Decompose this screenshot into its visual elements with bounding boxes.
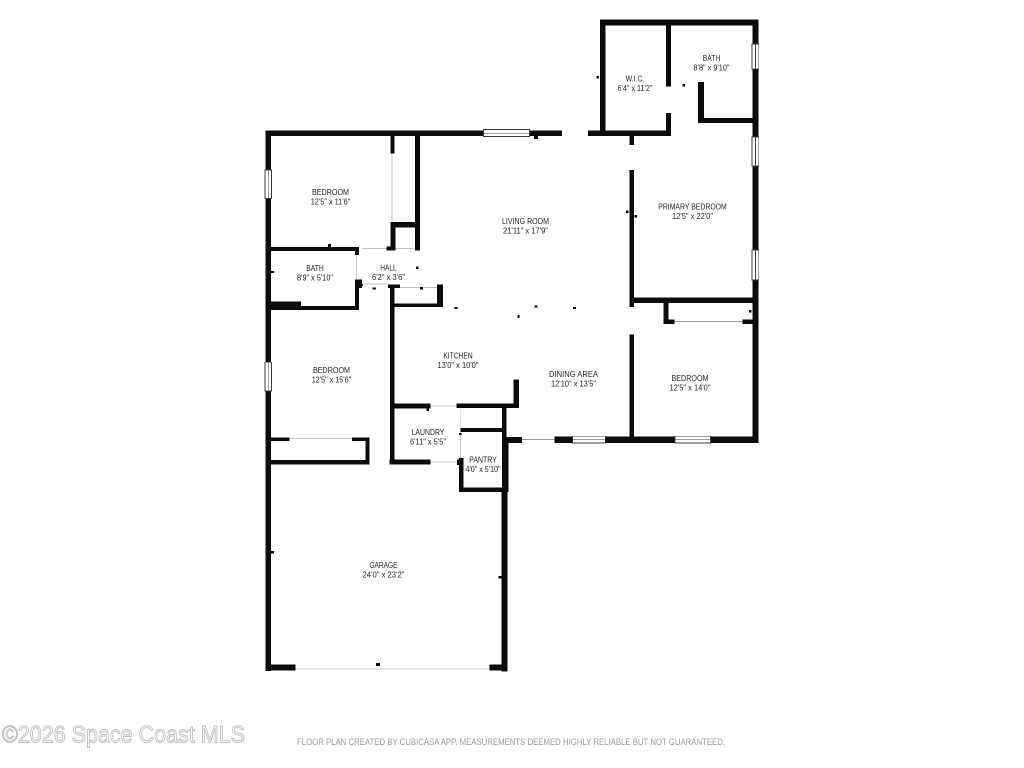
- svg-text:LAUNDRY: LAUNDRY: [412, 428, 446, 437]
- svg-text:HALL: HALL: [380, 264, 397, 273]
- svg-text:PANTRY: PANTRY: [469, 456, 497, 465]
- svg-text:PRIMARY BEDROOM: PRIMARY BEDROOM: [658, 203, 727, 212]
- svg-text:FLOOR PLAN CREATED BY CUBICASA: FLOOR PLAN CREATED BY CUBICASA APP. MEAS…: [297, 737, 725, 747]
- svg-text:KITCHEN: KITCHEN: [443, 352, 472, 361]
- svg-text:BATH: BATH: [703, 54, 721, 63]
- svg-text:BEDROOM: BEDROOM: [313, 366, 350, 375]
- svg-text:24'0" x 23'2": 24'0" x 23'2": [363, 570, 405, 579]
- svg-text:4'0" x 5'10": 4'0" x 5'10": [466, 465, 501, 474]
- svg-text:13'0" x 10'0": 13'0" x 10'0": [438, 361, 479, 370]
- svg-text:©2026 Space Coast MLS: ©2026 Space Coast MLS: [2, 722, 245, 749]
- svg-text:DINING AREA: DINING AREA: [549, 370, 599, 379]
- svg-text:8'9" x 5'10": 8'9" x 5'10": [297, 273, 333, 282]
- svg-text:6'4" x 11'2": 6'4" x 11'2": [618, 84, 653, 93]
- svg-text:21'11" x 17'9": 21'11" x 17'9": [503, 226, 548, 235]
- svg-text:BATH: BATH: [306, 264, 324, 273]
- svg-text:BEDROOM: BEDROOM: [312, 188, 349, 197]
- svg-text:12'5" x 22'0": 12'5" x 22'0": [672, 212, 713, 221]
- svg-text:BEDROOM: BEDROOM: [672, 374, 709, 383]
- svg-text:W.I.C.: W.I.C.: [626, 75, 645, 84]
- svg-text:12'10" x 13'5": 12'10" x 13'5": [551, 379, 596, 388]
- svg-text:GARAGE: GARAGE: [369, 561, 397, 570]
- svg-text:12'5" x 11'6": 12'5" x 11'6": [311, 197, 351, 206]
- svg-text:6'11" x 5'5": 6'11" x 5'5": [410, 437, 446, 446]
- svg-text:12'5" x 15'6": 12'5" x 15'6": [312, 375, 352, 384]
- svg-text:8'8" x 9'10": 8'8" x 9'10": [694, 63, 730, 72]
- svg-text:6'2" x 3'6": 6'2" x 3'6": [372, 273, 405, 282]
- svg-text:12'5" x 14'0": 12'5" x 14'0": [670, 383, 711, 392]
- svg-text:LIVING ROOM: LIVING ROOM: [502, 217, 549, 226]
